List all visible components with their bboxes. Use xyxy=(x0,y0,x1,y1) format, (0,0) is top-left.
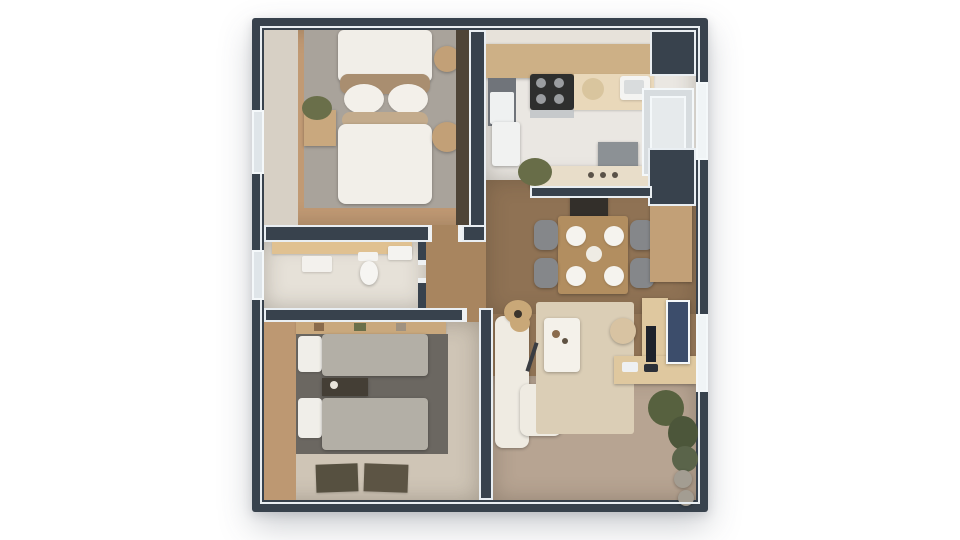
window-bathroom xyxy=(252,250,264,300)
floor-plan xyxy=(252,18,708,512)
window-living-right xyxy=(696,314,708,392)
window-kitchen-right xyxy=(696,82,708,160)
window-bedroom1 xyxy=(252,110,264,174)
outer-trim xyxy=(260,26,700,504)
canvas xyxy=(0,0,960,540)
